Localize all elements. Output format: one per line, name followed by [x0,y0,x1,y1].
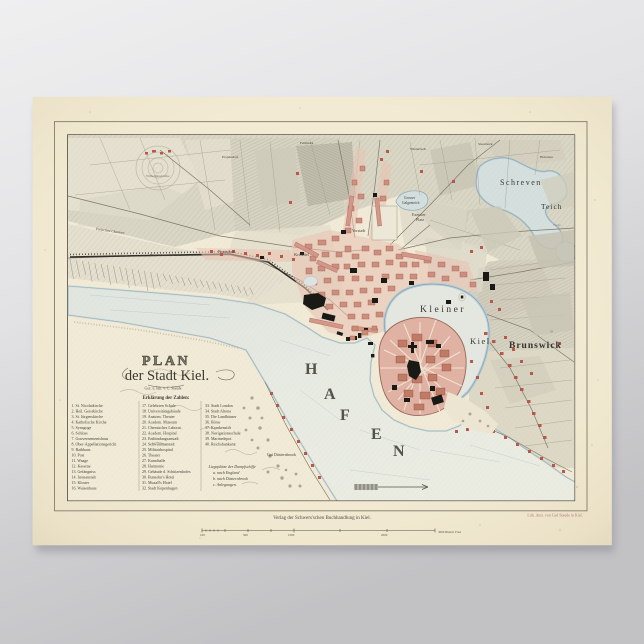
svg-text:Eisenbahn nach Altona: Eisenbahn nach Altona [150,253,183,257]
svg-text:13. Gefängniss: 13. Gefängniss [72,469,96,474]
svg-text:26. Theater: 26. Theater [142,453,161,458]
svg-text:12. Kaserne: 12. Kaserne [72,464,91,469]
svg-text:4. Katholische Kirche: 4. Katholische Kirche [72,420,107,425]
svg-text:der Stadt Kiel.: der Stadt Kiel. [125,368,209,384]
svg-text:3000 Rheinl. Fuss: 3000 Rheinl. Fuss [438,530,462,534]
svg-text:Teich: Teich [541,202,563,211]
svg-text:Kiel: Kiel [470,336,491,346]
svg-text:N: N [393,443,405,460]
svg-text:8. Ober-Appellationsgericht: 8. Ober-Appellationsgericht [72,442,118,447]
svg-text:34. Stadt Altona: 34. Stadt Altona [205,409,231,414]
svg-text:17. Gelehrten Schule: 17. Gelehrten Schule [142,403,176,408]
svg-text:37. Krankenstift: 37. Krankenstift [205,425,232,430]
svg-text:29. Gebäude d. Schützenhofes: 29. Gebäude d. Schützenhofes [142,469,191,474]
svg-text:22. Academ. Hospital: 22. Academ. Hospital [142,431,178,436]
svg-text:Wilhelminenhöhe: Wilhelminenhöhe [146,174,170,178]
svg-text:15. Kloster: 15. Kloster [72,480,90,485]
svg-text:Gez. u. lith. v. C. Staude: Gez. u. lith. v. C. Staude [144,387,181,391]
svg-text:Brunsdorf: Brunsdorf [218,249,235,254]
svg-text:Kleiner: Kleiner [420,305,466,315]
svg-text:Wege: Wege [553,223,561,227]
svg-text:Feldmark: Feldmark [300,141,314,145]
svg-text:10. Post: 10. Post [72,453,86,458]
svg-text:20. Academ. Museum: 20. Academ. Museum [142,420,178,425]
svg-text:Vorstadt: Vorstadt [352,228,366,233]
svg-text:Erklärung der Zahlen:: Erklärung der Zahlen: [143,396,190,401]
svg-text:Holtenau: Holtenau [540,155,553,159]
svg-text:PLAN: PLAN [142,354,190,369]
svg-text:39. Marinedepot: 39. Marinedepot [205,436,232,441]
svg-text:3. St. Jürgenskirche: 3. St. Jürgenskirche [72,414,104,419]
svg-text:38. Navigationsschule: 38. Navigationsschule [205,431,241,436]
svg-text:Lith. Anst. von Carl Staude in: Lith. Anst. von Carl Staude in Kiel. [527,514,582,518]
svg-text:27. Kunsthalle: 27. Kunsthalle [142,458,166,463]
svg-text:H: H [305,361,318,378]
svg-text:E: E [371,426,382,443]
svg-text:2. Heil. Geistkirche: 2. Heil. Geistkirche [72,409,104,414]
svg-text:40. Reichsbankamt: 40. Reichsbankamt [205,442,237,447]
svg-text:Verlag der Schwers'schen Buchh: Verlag der Schwers'schen Buchhandlung in… [273,516,371,521]
svg-text:Kröddel: Kröddel [294,252,309,257]
svg-text:Projensdorf: Projensdorf [222,155,239,159]
svg-text:c. Anlegungen.: c. Anlegungen. [213,482,237,487]
svg-text:A: A [324,386,336,403]
svg-text:28. Harmonie: 28. Harmonie [142,464,164,469]
svg-text:30. Bunsohn's Hotel: 30. Bunsohn's Hotel [142,475,175,480]
svg-text:32. Stadt Kopenhagen: 32. Stadt Kopenhagen [142,486,177,491]
svg-text:35. Die Landhäuser: 35. Die Landhäuser [205,414,237,419]
svg-text:19. Anatom. Theater: 19. Anatom. Theater [142,414,175,419]
svg-text:16. Waisenhaus: 16. Waisenhaus [72,486,97,491]
svg-text:Galgenteich: Galgenteich [402,201,420,205]
svg-text:Liegeplätze der Dampfschiffe: Liegeplätze der Dampfschiffe [208,464,256,469]
svg-text:100: 100 [200,533,205,537]
svg-text:23. Entbindungsanstalt: 23. Entbindungsanstalt [142,436,180,441]
svg-text:33. Stadt London: 33. Stadt London [205,403,233,408]
svg-text:11. Waage: 11. Waage [72,458,89,463]
svg-text:14. Irrenanstalt: 14. Irrenanstalt [72,475,97,480]
svg-text:Brunswick: Brunswick [509,341,562,351]
svg-text:Platz: Platz [416,217,424,222]
svg-text:5. Synagoge: 5. Synagoge [72,425,92,430]
svg-text:1. St. Nicolaikirche: 1. St. Nicolaikirche [72,403,103,408]
svg-text:9. Rathhaus: 9. Rathhaus [72,447,91,452]
svg-text:25. Militairhospital: 25. Militairhospital [142,447,174,452]
svg-text:36. Börse: 36. Börse [205,420,221,425]
svg-text:b. nach Düsternbrook: b. nach Düsternbrook [213,476,248,481]
svg-text:500: 500 [243,533,248,537]
svg-text:21. Chemisches Laborat.: 21. Chemisches Laborat. [142,425,182,430]
svg-text:Schreven: Schreven [500,178,542,187]
svg-text:Grosser: Grosser [404,196,416,200]
svg-text:7. Gouvernementshaus: 7. Gouvernementshaus [72,436,109,441]
svg-text:31. Muxall's Hotel: 31. Muxall's Hotel [142,480,173,485]
svg-text:F: F [340,407,350,424]
svg-text:Gut Düsternbrook: Gut Düsternbrook [267,452,296,457]
svg-text:Winterbeck: Winterbeck [410,147,426,151]
svg-text:6. Schloss: 6. Schloss [72,431,89,436]
svg-text:a. nach England: a. nach England [213,470,240,475]
svg-text:1000: 1000 [288,533,295,537]
svg-text:Steenbeck: Steenbeck [478,142,493,146]
svg-text:18. Universitätsgebäude: 18. Universitätsgebäude [142,409,181,414]
svg-text:24. Schwimmanstalt: 24. Schwimmanstalt [142,442,176,447]
svg-text:2000: 2000 [381,533,388,537]
